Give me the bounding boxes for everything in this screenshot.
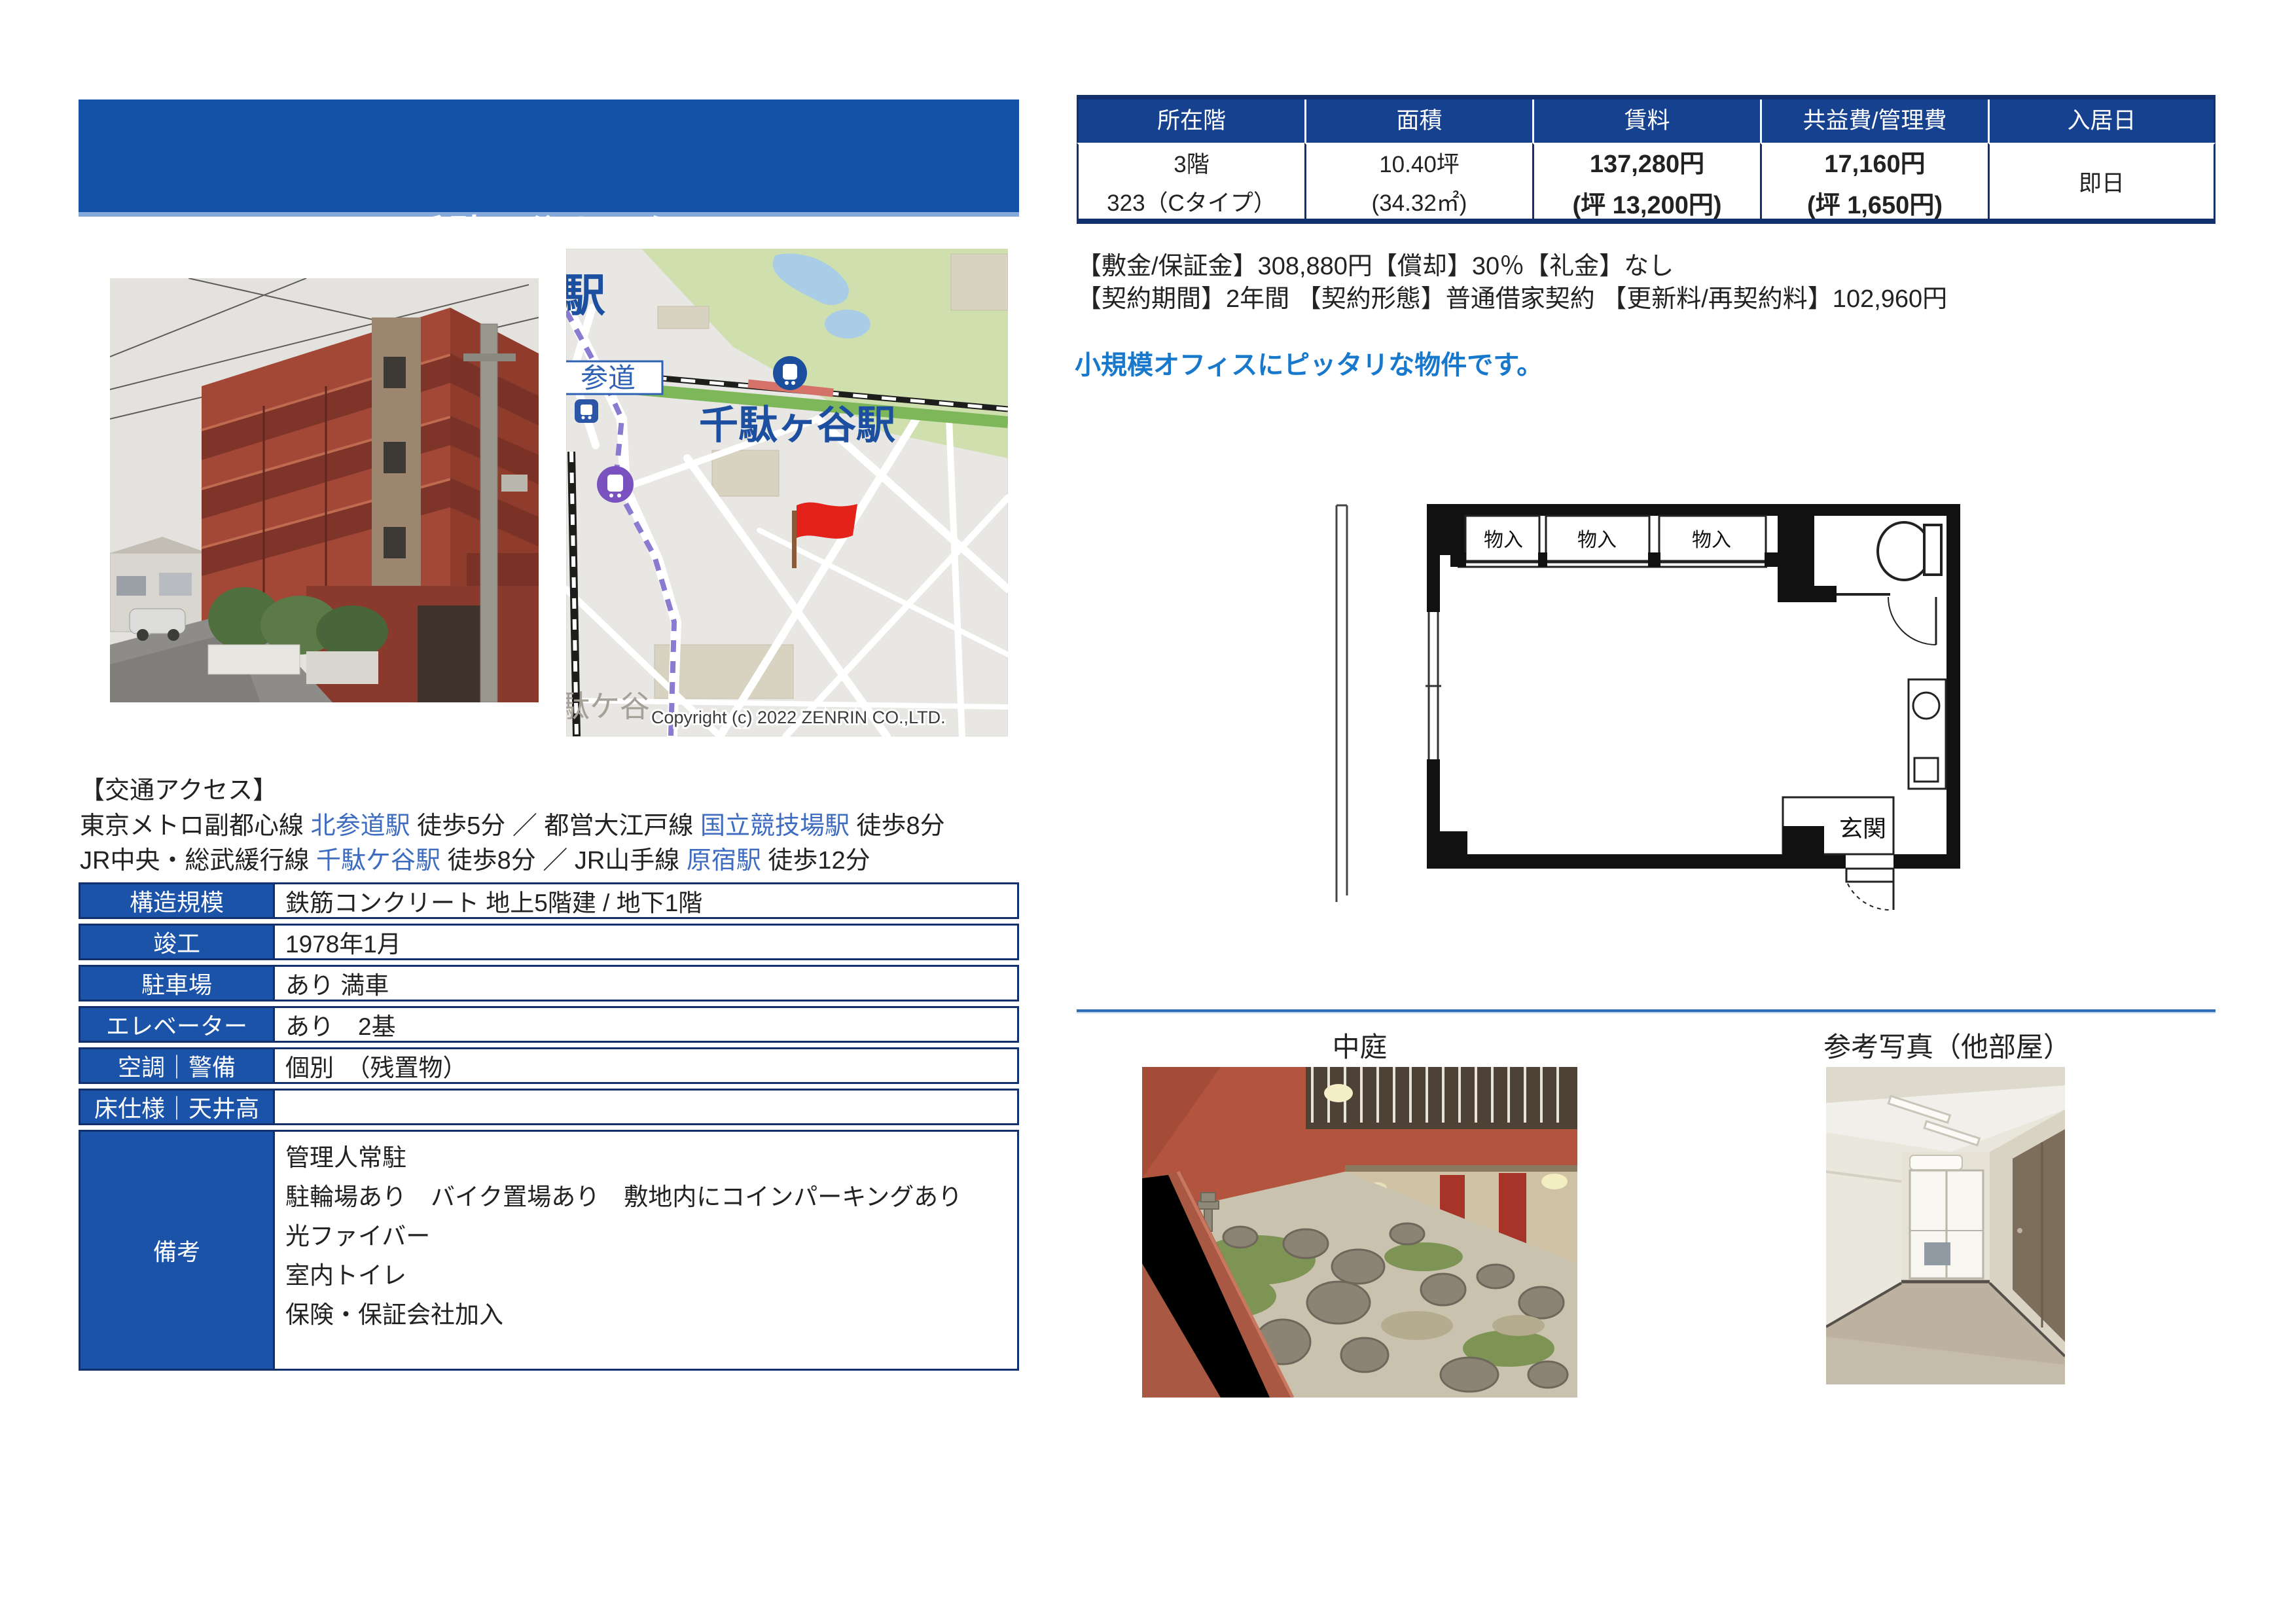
remarks-value: 管理人常駐 駐輪場あり バイク置場あり 敷地内にコインパーキングあり 光ファイバ… xyxy=(275,1130,1019,1371)
courtyard-photo xyxy=(1142,1067,1577,1398)
location-map: 参道 駅 千駄ヶ谷駅 駄ケ谷 Copyright (c) 2022 ZENRIN… xyxy=(566,249,1008,736)
detail-value: 1978年1月 xyxy=(275,924,1019,960)
col-movein: 入居日 xyxy=(1988,99,2215,143)
table-row: 竣工 1978年1月 xyxy=(79,924,1019,960)
district-partial-text: 駄ケ谷 xyxy=(566,689,650,723)
rent-line2: (坪 13,200円) xyxy=(1534,185,1760,221)
access-1-text: 東京メトロ副都心線 xyxy=(80,812,311,840)
entrance-label: 玄関 xyxy=(1839,815,1886,842)
table-row: エレベーター あり 2基 xyxy=(79,1006,1019,1043)
remarks-line: 管理人常駐 xyxy=(285,1138,406,1178)
movein-cell: 即日 xyxy=(1988,143,2215,219)
summary-table: 所在階 面積 賃料 共益費/管理費 入居日 3階 323（Cタイプ） 10.40… xyxy=(1077,95,2215,224)
access-1-station-kokuritsu: 国立競技場駅 xyxy=(700,812,850,840)
detail-value: 個別 （残置物） xyxy=(275,1047,1019,1084)
detail-label: 構造規模 xyxy=(79,882,275,919)
access-2-station-harajuku: 原宿駅 xyxy=(687,847,761,875)
kitasando-label-text: 参道 xyxy=(581,363,636,393)
contract-terms-line: 【契約期間】2年間 【契約形態】普通借家契約 【更新料/再契約料】102,960… xyxy=(1077,278,1947,314)
detail-value: あり 2基 xyxy=(275,1006,1019,1043)
table-row-remarks: 備考 管理人常駐 駐輪場あり バイク置場あり 敷地内にコインパーキングあり 光フ… xyxy=(79,1130,1019,1371)
closets: 物入 物入 物入 xyxy=(1450,516,1778,567)
access-2-text: JR中央・総武緩行線 xyxy=(80,847,316,875)
remarks-line: 駐輪場あり バイク置場あり 敷地内にコインパーキングあり xyxy=(285,1178,962,1217)
rent-cell: 137,280円 (坪 13,200円) xyxy=(1532,143,1760,219)
detail-label: 竣工 xyxy=(79,924,275,960)
area-line1: 10.40坪 xyxy=(1306,146,1532,179)
property-category: 事務所 xyxy=(238,209,328,253)
rent-line1: 137,280円 xyxy=(1534,143,1760,179)
closet-label-2: 物入 xyxy=(1577,530,1617,551)
movein-value: 即日 xyxy=(1990,165,2214,198)
reference-room-photo xyxy=(1826,1067,2065,1384)
detail-label: 駐車場 xyxy=(79,965,275,1001)
building-exterior-photo xyxy=(110,278,539,702)
toilet-tank-icon xyxy=(1924,525,1941,575)
subway-station-icon xyxy=(597,466,634,503)
area-cell: 10.40坪 (34.32㎡) xyxy=(1304,143,1532,219)
remarks-label: 備考 xyxy=(79,1130,275,1371)
metro-entrance-icon xyxy=(575,399,598,423)
detail-label: 床仕様｜天井高 xyxy=(79,1089,275,1125)
floor-line1: 3階 xyxy=(1079,146,1304,179)
header-banner: 事務所 千駄ヶ谷ホリタン 東京都渋谷区千駄ヶ谷2-39-3 xyxy=(79,99,1019,217)
toilet-bowl-icon xyxy=(1878,522,1930,580)
access-1-text3: 徒歩8分 xyxy=(850,812,945,840)
col-fee: 共益費/管理費 xyxy=(1760,99,1988,143)
promo-text: 小規模オフィスにピッタリな物件です。 xyxy=(1075,344,1543,382)
sendagaya-station-text: 千駄ヶ谷駅 xyxy=(699,403,895,447)
summary-table-row: 3階 323（Cタイプ） 10.40坪 (34.32㎡) 137,280円 (坪… xyxy=(1077,143,2215,219)
courtyard-caption: 中庭 xyxy=(1142,1025,1577,1065)
access-2-text2: 徒歩8分 ／ JR山手線 xyxy=(440,847,687,875)
fixture-icon xyxy=(1914,758,1938,782)
reference-caption: 参考写真（他部屋） xyxy=(1767,1025,2127,1065)
fee-line2: (坪 1,650円) xyxy=(1762,185,1988,221)
remarks-line: 室内トイレ xyxy=(285,1256,406,1295)
jr-station-icon xyxy=(773,356,807,390)
detail-label: エレベーター xyxy=(79,1006,275,1043)
remarks-line: 光ファイバー xyxy=(285,1217,430,1256)
summary-table-header: 所在階 面積 賃料 共益費/管理費 入居日 xyxy=(1077,99,2215,143)
access-1-station-kitasando: 北参道駅 xyxy=(311,812,410,840)
closet-label-1: 物入 xyxy=(1484,530,1523,551)
partial-station-text: 駅 xyxy=(566,271,605,321)
deposit-terms-line: 【敷金/保証金】308,880円【償却】30％【礼金】なし xyxy=(1077,245,1674,281)
section-divider xyxy=(1077,1009,2215,1013)
access-heading: 【交通アクセス】 xyxy=(80,770,278,806)
floor-plan: 物入 物入 物入 玄関 xyxy=(1322,478,1990,975)
table-row: 構造規模 鉄筋コンクリート 地上5階建 / 地下1階 xyxy=(79,882,1019,919)
area-line2: (34.32㎡) xyxy=(1306,185,1532,218)
detail-value: あり 満車 xyxy=(275,965,1019,1001)
detail-label: 空調｜警備 xyxy=(79,1047,275,1084)
table-row: 床仕様｜天井高 xyxy=(79,1089,1019,1125)
air-conditioner xyxy=(1910,1155,1962,1170)
map-copyright: Copyright (c) 2022 ZENRIN CO.,LTD. xyxy=(651,708,946,727)
fee-cell: 17,160円 (坪 1,650円) xyxy=(1760,143,1988,219)
access-2-station-sendagaya: 千駄ケ谷駅 xyxy=(316,847,440,875)
access-line-1: 東京メトロ副都心線 北参道駅 徒歩5分 ／ 都営大江戸線 国立競技場駅 徒歩8分 xyxy=(80,805,945,841)
property-flyer-page: 事務所 千駄ヶ谷ホリタン 東京都渋谷区千駄ヶ谷2-39-3 所在階 面積 賃料 … xyxy=(0,0,2296,1624)
closet-label-3: 物入 xyxy=(1692,530,1731,551)
remarks-line: 保険・保証会社加入 xyxy=(285,1295,503,1335)
kitasando-label: 参道 xyxy=(566,361,662,394)
floor-cell: 3階 323（Cタイプ） xyxy=(1077,143,1304,219)
col-rent: 賃料 xyxy=(1532,99,1760,143)
entrance-door-leaf xyxy=(1846,869,1893,882)
access-2-text3: 徒歩12分 xyxy=(761,847,870,875)
table-row: 駐車場 あり 満車 xyxy=(79,965,1019,1001)
sink-icon xyxy=(1913,693,1939,719)
fee-line1: 17,160円 xyxy=(1762,143,1988,179)
building-details-table: 構造規模 鉄筋コンクリート 地上5階建 / 地下1階 竣工 1978年1月 駐車… xyxy=(79,882,1019,1375)
detail-value xyxy=(275,1089,1019,1125)
col-floor: 所在階 xyxy=(1077,99,1304,143)
access-1-text2: 徒歩5分 ／ 都営大江戸線 xyxy=(410,812,700,840)
detail-value: 鉄筋コンクリート 地上5階建 / 地下1階 xyxy=(275,882,1019,919)
table-row: 空調｜警備 個別 （残置物） xyxy=(79,1047,1019,1084)
left-window xyxy=(1426,612,1441,759)
access-line-2: JR中央・総武緩行線 千駄ケ谷駅 徒歩8分 ／ JR山手線 原宿駅 徒歩12分 xyxy=(80,840,870,876)
washbasin-alcove xyxy=(1909,679,1946,789)
col-area: 面積 xyxy=(1304,99,1532,143)
floor-line2: 323（Cタイプ） xyxy=(1079,185,1304,218)
